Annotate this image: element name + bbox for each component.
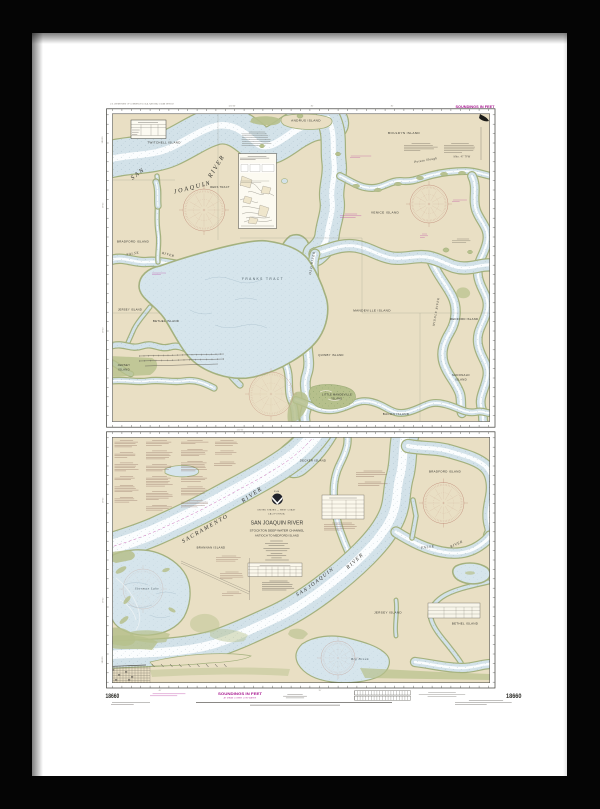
svg-text:121°35': 121°35' — [237, 430, 244, 432]
svg-text:38°05': 38°05' — [103, 202, 105, 208]
svg-text:BETHEL ISLAND: BETHEL ISLAND — [452, 622, 478, 626]
svg-text:BRANNAN ISLAND: BRANNAN ISLAND — [197, 546, 226, 550]
svg-text:U.S. DEPARTMENT OF COMMERCE N: U.S. DEPARTMENT OF COMMERCE N.O.A.A. NAT… — [110, 102, 175, 105]
svg-text:40': 40' — [159, 690, 162, 692]
svg-text:ISLAND: ISLAND — [332, 397, 343, 401]
svg-text:ANTIOCH TO MEDFORD ISLAND: ANTIOCH TO MEDFORD ISLAND — [255, 534, 299, 537]
svg-text:SAN JOAQUIN RIVER: SAN JOAQUIN RIVER — [251, 520, 304, 526]
svg-text:HOLLAND TRACT: HOLLAND TRACT — [289, 423, 319, 427]
svg-text:SOUNDINGS IN FEET: SOUNDINGS IN FEET — [456, 104, 496, 109]
svg-text:ISLAND: ISLAND — [118, 368, 130, 372]
svg-text:SOUNDINGS IN FEET: SOUNDINGS IN FEET — [218, 692, 263, 696]
svg-text:AT MEAN LOWER LOW WATER: AT MEAN LOWER LOW WATER — [224, 697, 257, 700]
svg-text:BETHEL ISLAND: BETHEL ISLAND — [153, 319, 179, 323]
svg-text:35': 35' — [319, 690, 322, 692]
svg-text:STOCKTON DEEP WATER CHANNEL: STOCKTON DEEP WATER CHANNEL — [250, 529, 305, 533]
svg-text:18660: 18660 — [506, 693, 522, 700]
svg-text:MANDEVILLE ISLAND: MANDEVILLE ISLAND — [353, 309, 391, 313]
svg-text:McDONALD: McDONALD — [452, 373, 470, 377]
svg-text:ANDRUS ISLAND: ANDRUS ISLAND — [291, 119, 321, 123]
svg-text:Sherman Lake: Sherman Lake — [135, 587, 159, 591]
svg-text:18660: 18660 — [102, 136, 104, 144]
svg-text:30': 30' — [399, 430, 402, 432]
svg-text:35': 35' — [311, 106, 314, 108]
svg-text:121°40': 121°40' — [228, 106, 236, 108]
svg-text:JERSEY ISLAND: JERSEY ISLAND — [118, 308, 142, 312]
svg-text:JERSEY: JERSEY — [118, 363, 131, 367]
svg-text:DECKER ISLAND: DECKER ISLAND — [300, 459, 326, 463]
svg-text:30': 30' — [391, 106, 394, 108]
svg-text:BACON ISLAND: BACON ISLAND — [383, 412, 410, 416]
svg-text:LITTLE MANDEVILLE: LITTLE MANDEVILLE — [322, 393, 352, 397]
svg-text:Big Break: Big Break — [351, 657, 369, 661]
svg-text:QUINBY ISLAND: QUINBY ISLAND — [318, 353, 343, 357]
svg-text:38°05': 38°05' — [103, 497, 105, 503]
svg-text:18660: 18660 — [102, 656, 104, 664]
svg-text:FRANKS TRACT: FRANKS TRACT — [242, 277, 284, 281]
svg-text:MEDFORD ISLAND: MEDFORD ISLAND — [450, 317, 479, 321]
svg-text:ISLAND: ISLAND — [455, 378, 467, 382]
svg-text:BOULDYN ISLAND: BOULDYN ISLAND — [388, 131, 420, 135]
svg-text:UNITED STATES — WEST COAST: UNITED STATES — WEST COAST — [257, 509, 296, 512]
svg-text:38°02': 38°02' — [103, 597, 105, 603]
svg-text:VENICE ISLAND: VENICE ISLAND — [371, 211, 400, 215]
svg-text:VEALE TRACT: VEALE TRACT — [172, 423, 196, 427]
svg-text:BRADFORD ISLAND: BRADFORD ISLAND — [117, 240, 149, 244]
svg-text:REDS TRACT: REDS TRACT — [210, 185, 230, 189]
svg-text:18660: 18660 — [106, 693, 120, 700]
svg-text:CALIFORNIA: CALIFORNIA — [268, 513, 285, 516]
svg-text:BRADFORD ISLAND: BRADFORD ISLAND — [429, 470, 461, 474]
svg-text:TWITCHELL ISLAND: TWITCHELL ISLAND — [147, 141, 181, 145]
svg-text:38°00': 38°00' — [103, 327, 105, 333]
svg-text:Mhn. 47 TFW: Mhn. 47 TFW — [454, 156, 471, 159]
svg-text:JERSEY ISLAND: JERSEY ISLAND — [374, 611, 402, 615]
